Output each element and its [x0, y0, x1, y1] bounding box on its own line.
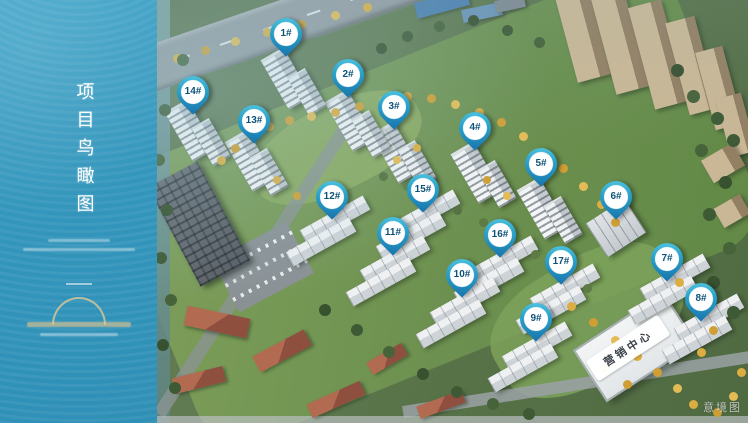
tree-cluster	[711, 112, 724, 125]
building-pin-17[interactable]: 17#	[545, 246, 577, 292]
village-house	[416, 390, 466, 419]
aerial-view: 1#2#3#4#5#6#7#8#9#10#11#12#13#14#15#16#1…	[157, 0, 748, 423]
watermark: 意境图	[703, 399, 742, 415]
pin-label: 15#	[407, 178, 439, 202]
tree-cluster	[351, 324, 363, 336]
sidebar: 项目鸟瞰图	[0, 0, 157, 423]
pin-label: 1#	[270, 22, 302, 46]
pin-label: 10#	[446, 263, 478, 287]
building-pin-4[interactable]: 4#	[459, 112, 491, 158]
building-pin-12[interactable]: 12#	[316, 181, 348, 227]
pin-label: 16#	[484, 223, 516, 247]
sidebar-divider	[66, 283, 92, 285]
building-pin-10[interactable]: 10#	[446, 259, 478, 305]
tree-cluster	[273, 176, 281, 184]
building-pin-6[interactable]: 6#	[600, 181, 632, 227]
brand-logo-text	[27, 322, 131, 327]
pin-label: 2#	[332, 63, 364, 87]
brand-logo-icon	[52, 297, 106, 325]
pin-label: 13#	[238, 109, 270, 133]
tree-cluster	[689, 400, 698, 409]
pin-label: 7#	[651, 247, 683, 271]
building-pin-9[interactable]: 9#	[520, 303, 552, 349]
slide: 项目鸟瞰图 1#2#3#4#5#6#7#8#9#10#11#12#13#14#1…	[0, 0, 748, 423]
brand-logo-subtext	[40, 333, 118, 336]
building-pin-15[interactable]: 15#	[407, 174, 439, 220]
building-pin-3[interactable]: 3#	[378, 91, 410, 137]
pin-label: 12#	[316, 185, 348, 209]
building-pin-1[interactable]: 1#	[270, 18, 302, 64]
pin-label: 4#	[459, 116, 491, 140]
building-pin-11[interactable]: 11#	[377, 217, 409, 263]
building-pin-8[interactable]: 8#	[685, 283, 717, 329]
building-pin-14[interactable]: 14#	[177, 76, 209, 122]
tree-cluster	[159, 104, 171, 116]
tree-cluster	[173, 54, 182, 63]
building-pin-2[interactable]: 2#	[332, 59, 364, 105]
tree-cluster	[217, 156, 226, 165]
building-pin-5[interactable]: 5#	[525, 148, 557, 194]
sidebar-tagline-line2	[23, 248, 135, 251]
bottom-road-edge	[157, 416, 748, 423]
sidebar-tagline-line1	[48, 239, 110, 242]
building-pin-16[interactable]: 16#	[484, 219, 516, 265]
pin-label: 8#	[685, 287, 717, 311]
pin-label: 5#	[525, 152, 557, 176]
pin-label: 17#	[545, 250, 577, 274]
tree-cluster	[379, 172, 388, 181]
pin-label: 14#	[177, 80, 209, 104]
building-pin-13[interactable]: 13#	[238, 105, 270, 151]
building-pin-7[interactable]: 7#	[651, 243, 683, 289]
pin-label: 3#	[378, 95, 410, 119]
page-title: 项目鸟瞰图	[72, 82, 98, 222]
pin-label: 11#	[377, 221, 409, 245]
pin-label: 6#	[600, 185, 632, 209]
pin-label: 9#	[520, 307, 552, 331]
tree-cluster	[567, 302, 576, 311]
tree-cluster	[402, 31, 413, 42]
